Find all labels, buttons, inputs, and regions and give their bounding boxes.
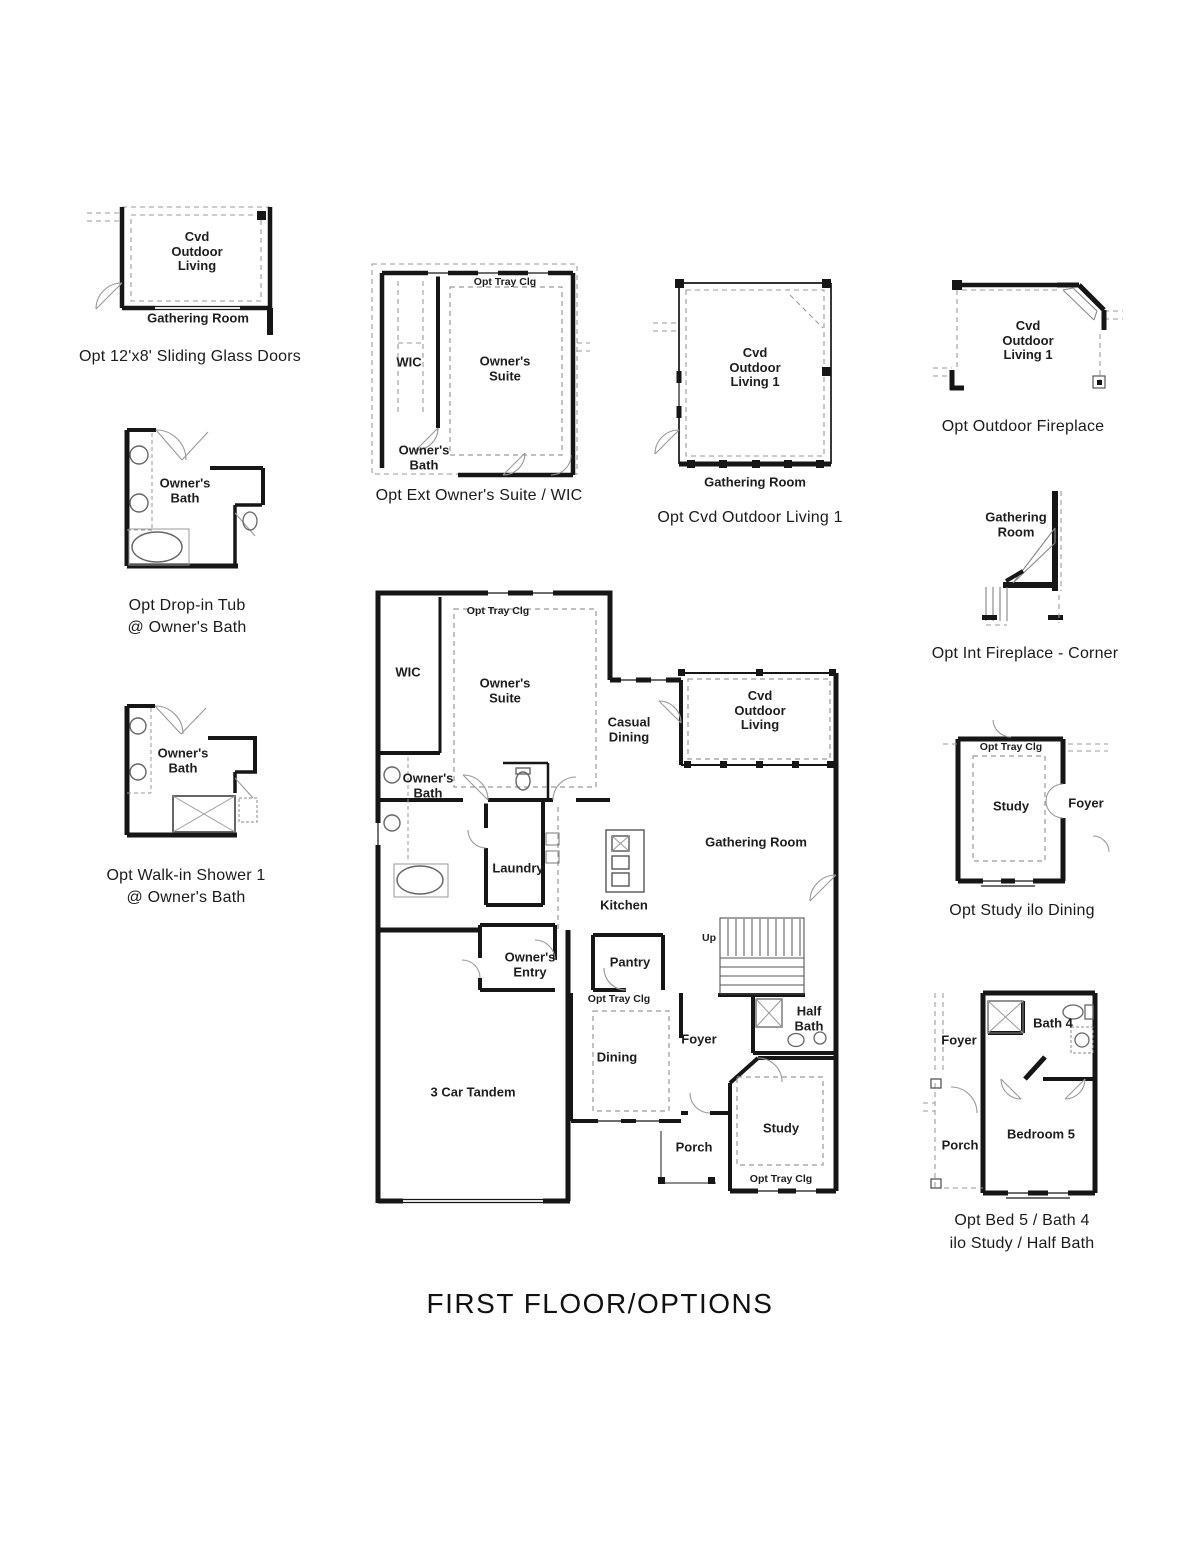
caption-drop-in-tub-line1: Opt Drop-in Tub bbox=[129, 597, 246, 615]
room-label-cvd-outdoor-living: Cvd Outdoor Living bbox=[167, 230, 227, 274]
room-label-owners-entry: Owner's Entry bbox=[501, 950, 559, 979]
room-label-wic: WIC bbox=[395, 666, 420, 681]
inset-bed5-bath4: Foyer Bath 4 Bedroom 5 Porch Opt Bed 5 /… bbox=[923, 983, 1123, 1268]
room-label-laundry: Laundry bbox=[492, 862, 543, 877]
room-label-owners-bath: Owner's Bath bbox=[151, 746, 215, 775]
label-stairs-up: Up bbox=[702, 933, 716, 945]
room-label-foyer: Foyer bbox=[681, 1033, 716, 1048]
label-opt-tray-clg-suite: Opt Tray Clg bbox=[467, 606, 529, 618]
room-label-cvd-outdoor-living: Cvd Outdoor Living bbox=[729, 689, 791, 733]
room-label-half-bath: Half Bath bbox=[791, 1004, 827, 1033]
sink-icon bbox=[1071, 1027, 1093, 1053]
int-fireplace-corner-drawing bbox=[928, 483, 1133, 633]
room-label-foyer: Foyer bbox=[1068, 797, 1103, 812]
room-label-owners-bath: Owner's Bath bbox=[397, 771, 459, 800]
caption-drop-in-tub-line2: @ Owner's Bath bbox=[127, 619, 246, 637]
room-label-study: Study bbox=[993, 800, 1029, 815]
room-label-cvd-outdoor-living-1: Cvd Outdoor Living 1 bbox=[724, 346, 786, 390]
label-opt-tray-clg-study: Opt Tray Clg bbox=[750, 1174, 812, 1186]
room-label-study: Study bbox=[763, 1122, 799, 1137]
room-label-owners-bath: Owner's Bath bbox=[393, 443, 455, 472]
plan-title: FIRST FLOOR/OPTIONS bbox=[0, 1288, 1200, 1320]
room-label-gathering-room: Gathering Room bbox=[147, 312, 249, 327]
tub-icon bbox=[129, 529, 189, 565]
toilet-icon bbox=[243, 512, 257, 530]
inset-study-ilo-dining: Opt Tray Clg Study Foyer Opt Study ilo D… bbox=[943, 718, 1123, 923]
room-label-cvd-outdoor-living-1: Cvd Outdoor Living 1 bbox=[997, 319, 1059, 363]
interior-walls bbox=[988, 1001, 1095, 1079]
main-floor-plan: Opt Tray Clg WIC Owner's Suite Casual Di… bbox=[368, 583, 853, 1213]
label-opt-tray-clg: Opt Tray Clg bbox=[474, 277, 536, 289]
sink-icons bbox=[130, 446, 148, 512]
label-opt-tray-clg: Opt Tray Clg bbox=[980, 742, 1042, 754]
stairs bbox=[720, 918, 804, 994]
vanity-dashed bbox=[127, 433, 152, 530]
inset-sliding-glass-doors: Cvd Outdoor Living Gathering Room Opt 12… bbox=[85, 195, 300, 373]
caption-outdoor-fireplace: Opt Outdoor Fireplace bbox=[942, 418, 1105, 436]
caption-walk-in-shower-line1: Opt Walk-in Shower 1 bbox=[106, 867, 265, 885]
caption-walk-in-shower-line2: @ Owner's Bath bbox=[126, 889, 245, 907]
room-label-bedroom-5: Bedroom 5 bbox=[1007, 1128, 1075, 1143]
sliding-door-lines bbox=[155, 307, 240, 310]
room-label-owners-bath: Owner's Bath bbox=[153, 476, 217, 505]
inset-walk-in-shower: Owner's Bath Opt Walk-in Shower 1 @ Owne… bbox=[105, 678, 305, 918]
kitchen-counter bbox=[546, 833, 559, 863]
room-label-dining: Dining bbox=[597, 1051, 637, 1066]
room-label-3-car-tandem: 3 Car Tandem bbox=[430, 1086, 515, 1101]
room-label-pantry: Pantry bbox=[610, 956, 650, 971]
fireplace-inner-lines bbox=[1063, 288, 1097, 320]
inset-int-fireplace-corner: Gathering Room Opt Int Fireplace - Corne… bbox=[928, 483, 1133, 668]
room-label-porch: Porch bbox=[676, 1141, 713, 1156]
room-label-gathering-room: Gathering Room bbox=[705, 836, 807, 851]
room-label-owners-suite: Owner's Suite bbox=[475, 354, 535, 383]
room-label-kitchen: Kitchen bbox=[600, 899, 648, 914]
room-label-owners-suite: Owner's Suite bbox=[475, 676, 535, 705]
caption-sliding-glass-doors: Opt 12'x8' Sliding Glass Doors bbox=[79, 348, 301, 366]
kitchen-island bbox=[606, 830, 644, 892]
room-label-foyer: Foyer bbox=[941, 1034, 976, 1049]
door-arc bbox=[655, 430, 679, 454]
porch-post bbox=[931, 1079, 941, 1188]
inset-ext-owners-suite: Opt Tray Clg WIC Owner's Suite Owner's B… bbox=[368, 263, 590, 513]
caption-int-fireplace-corner: Opt Int Fireplace - Corner bbox=[932, 645, 1119, 663]
first-floor-options-sheet: Cvd Outdoor Living Gathering Room Opt 12… bbox=[0, 0, 1200, 1553]
label-opt-tray-clg-dining: Opt Tray Clg bbox=[588, 994, 650, 1006]
caption-bed5-bath4-line1: Opt Bed 5 / Bath 4 bbox=[954, 1212, 1089, 1230]
door-arcs bbox=[951, 1079, 1085, 1113]
room-label-casual-dining: Casual Dining bbox=[603, 715, 655, 744]
bed5-bath4-drawing bbox=[923, 983, 1123, 1205]
patio-posts bbox=[658, 669, 836, 1184]
linen-icon bbox=[239, 798, 257, 822]
inset-drop-in-tub: Owner's Bath Opt Drop-in Tub @ Owner's B… bbox=[110, 418, 305, 648]
room-label-gathering-room: Gathering Room bbox=[977, 510, 1055, 539]
fireplace-hearth bbox=[982, 571, 1063, 621]
caption-bed5-bath4-line2: ilo Study / Half Bath bbox=[950, 1235, 1095, 1253]
sink-icons bbox=[130, 718, 146, 780]
room-label-gathering-room: Gathering Room bbox=[704, 476, 806, 491]
inset-outdoor-fireplace: Cvd Outdoor Living 1 Opt Outdoor Firepla… bbox=[933, 268, 1123, 438]
door-arc bbox=[96, 283, 122, 309]
room-label-bath-4: Bath 4 bbox=[1033, 1017, 1073, 1032]
caption-ext-owners-suite: Opt Ext Owner's Suite / WIC bbox=[376, 487, 583, 505]
inset-cvd-outdoor-living-1: Cvd Outdoor Living 1 Gathering Room Opt … bbox=[653, 268, 853, 530]
foyer-porch-dashed bbox=[923, 993, 983, 1188]
room-label-porch: Porch bbox=[942, 1139, 979, 1154]
walk-in-shower-icon bbox=[173, 796, 235, 832]
shower-icon bbox=[988, 1001, 1023, 1033]
corner-post bbox=[257, 211, 266, 220]
interior-walls bbox=[378, 597, 836, 1191]
room-label-wic: WIC bbox=[396, 356, 421, 371]
caption-cvd-outdoor-living-1: Opt Cvd Outdoor Living 1 bbox=[657, 509, 842, 527]
caption-study-ilo-dining: Opt Study ilo Dining bbox=[949, 902, 1094, 920]
